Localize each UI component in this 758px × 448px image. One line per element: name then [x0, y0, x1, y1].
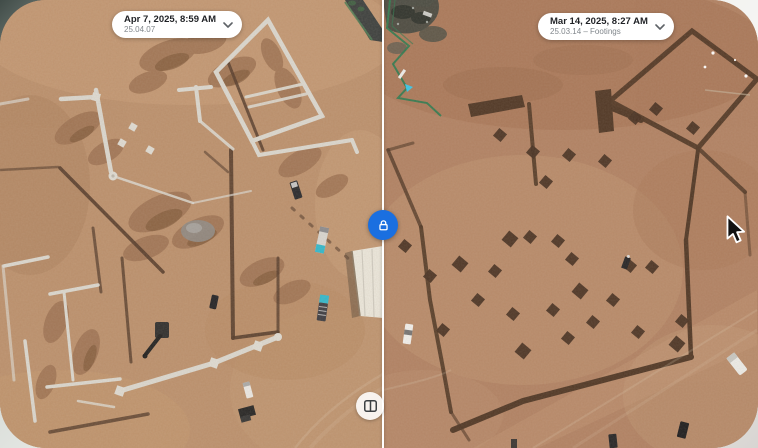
left-date-label: Apr 7, 2025, 8:59 AM — [124, 14, 216, 25]
aerial-imagery-right[interactable] — [383, 0, 758, 448]
chevron-down-icon — [655, 24, 665, 30]
left-flight-name: 25.04.07 — [124, 25, 216, 35]
sync-lock-button[interactable] — [368, 210, 398, 240]
right-date-selector[interactable]: Mar 14, 2025, 8:27 AM 25.03.14 – Footing… — [538, 13, 674, 40]
right-date-label: Mar 14, 2025, 8:27 AM — [550, 16, 648, 27]
map-panel-right[interactable] — [383, 0, 758, 448]
chevron-down-icon — [223, 22, 233, 28]
side-by-side-icon — [364, 400, 377, 412]
left-date-selector[interactable]: Apr 7, 2025, 8:59 AM 25.04.07 — [112, 11, 242, 38]
aerial-imagery-left[interactable] — [0, 0, 383, 448]
map-viewport: Apr 7, 2025, 8:59 AM 25.04.07 Mar 14, 20… — [0, 0, 758, 448]
compare-view: Apr 7, 2025, 8:59 AM 25.04.07 Mar 14, 20… — [0, 0, 758, 448]
lock-icon — [377, 219, 390, 232]
right-flight-name: 25.03.14 – Footings — [550, 27, 648, 37]
map-panel-left[interactable] — [0, 0, 383, 448]
split-view-button[interactable] — [356, 392, 384, 420]
